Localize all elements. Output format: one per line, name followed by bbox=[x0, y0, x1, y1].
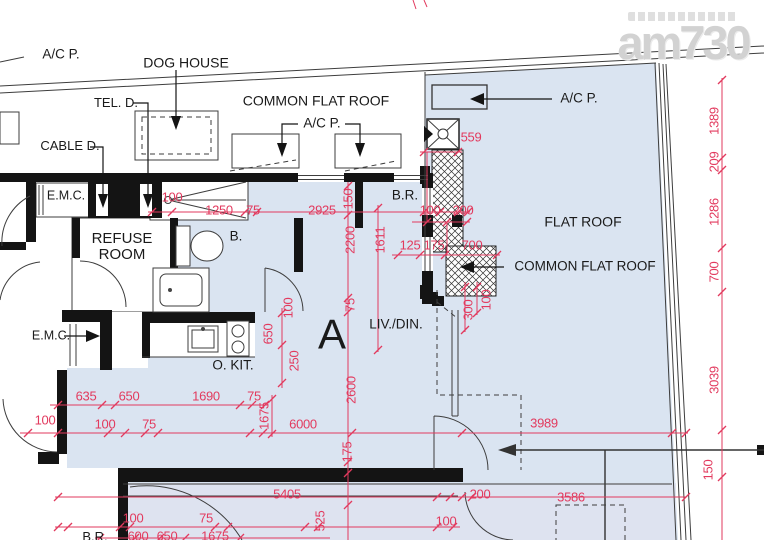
watermark: am730 bbox=[604, 12, 762, 66]
watermark-slogan bbox=[628, 12, 738, 21]
floorplan-drawing bbox=[0, 0, 764, 540]
toilet-bowl-icon bbox=[191, 231, 223, 261]
floor-drain-icon bbox=[424, 119, 459, 149]
vanity-icon bbox=[153, 268, 209, 312]
stove-icon bbox=[227, 321, 249, 356]
utility-box bbox=[0, 112, 19, 144]
floorplan-canvas: A/C P.DOG HOUSETEL. D.COMMON FLAT ROOFA/… bbox=[0, 0, 764, 540]
watermark-logo: am730 bbox=[604, 21, 762, 66]
toilet-tank-icon bbox=[176, 226, 190, 266]
kitchen-fixtures bbox=[188, 321, 249, 356]
